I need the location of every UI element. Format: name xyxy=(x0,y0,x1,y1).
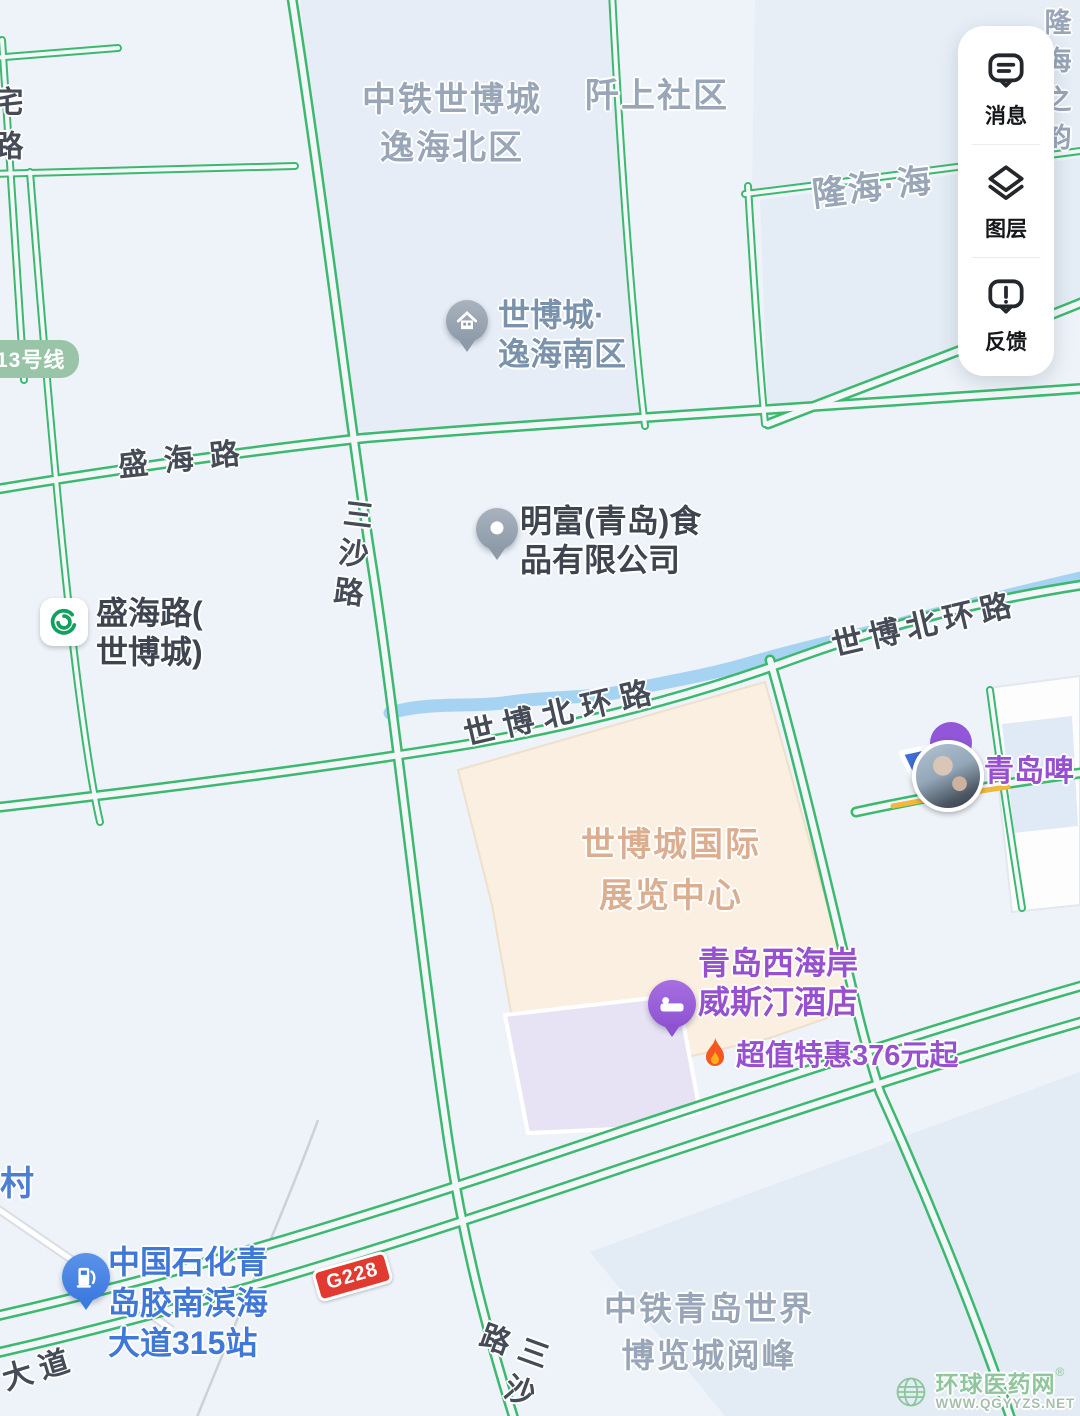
feedback-button[interactable]: 反馈 xyxy=(958,258,1054,370)
metro-line-13-badge: 13号线 xyxy=(0,340,79,378)
westin-promo-text: 超值特惠376元起 xyxy=(736,1032,958,1074)
feedback-label: 反馈 xyxy=(985,326,1027,356)
site-watermark: 环球医药网® WWW.QGYYZS.NET xyxy=(893,1372,1075,1411)
watermark-reg-mark: ® xyxy=(1056,1365,1065,1379)
poi-pin-yihai-south[interactable] xyxy=(446,300,488,342)
watermark-title: 环球医药网 xyxy=(936,1371,1056,1397)
qingdao-metro-logo-icon xyxy=(47,605,81,639)
poi-label-beer[interactable]: 青岛啤 xyxy=(984,746,1074,790)
flame-icon xyxy=(702,1037,728,1069)
layers-icon xyxy=(983,161,1029,207)
message-bubble-icon xyxy=(983,48,1029,94)
metro-station-icon[interactable] xyxy=(40,598,88,646)
messages-label: 消息 xyxy=(985,100,1027,130)
area-label-qianshang: 阡上社区 xyxy=(585,72,729,120)
feedback-exclamation-icon xyxy=(983,274,1029,320)
dot-icon xyxy=(484,516,510,542)
area-label-zhongtie-north: 中铁世博城 逸海北区 xyxy=(338,76,566,173)
fuel-pump-icon xyxy=(72,1263,100,1291)
poi-label-westin[interactable]: 青岛西海岸 威斯汀酒店 xyxy=(698,944,858,1022)
poi-label-yihai-south[interactable]: 世博城· 逸海南区 xyxy=(498,296,626,374)
road-label-left-edge: 宅路 xyxy=(0,86,25,174)
poi-label-mingfu[interactable]: 明富(青岛)食 品有限公司 xyxy=(520,502,701,580)
map-app-screen: 中铁世博城 逸海北区 阡上社区 隆海·海 隆海 之韵 世博城国际 展览中心 中铁… xyxy=(0,0,1080,1416)
watermark-url: WWW.QGYYZS.NET xyxy=(936,1397,1075,1411)
globe-icon xyxy=(893,1374,929,1410)
poi-label-metro-station[interactable]: 盛海路( 世博城) xyxy=(96,594,203,672)
area-label-yuefeng: 中铁青岛世界 博览城阅峰 xyxy=(575,1286,843,1380)
poi-pin-gas-station[interactable] xyxy=(62,1253,110,1301)
messages-button[interactable]: 消息 xyxy=(958,32,1054,144)
area-label-expo-center: 世博城国际 展览中心 xyxy=(540,820,802,922)
area-label-village: 村 xyxy=(0,1162,34,1208)
poi-label-gas-station[interactable]: 中国石化青 岛胶南滨海 大道315站 xyxy=(108,1242,268,1364)
poi-pin-westin[interactable] xyxy=(648,980,696,1028)
layers-button[interactable]: 图层 xyxy=(958,145,1054,257)
bed-icon xyxy=(657,989,687,1019)
poi-pin-mingfu[interactable] xyxy=(476,508,518,550)
westin-promo[interactable]: 超值特惠376元起 xyxy=(702,1032,958,1074)
layers-label: 图层 xyxy=(985,213,1027,243)
floating-action-panel: 消息 图层 反馈 xyxy=(958,26,1054,376)
house-icon xyxy=(454,308,480,334)
user-avatar[interactable] xyxy=(912,740,984,812)
